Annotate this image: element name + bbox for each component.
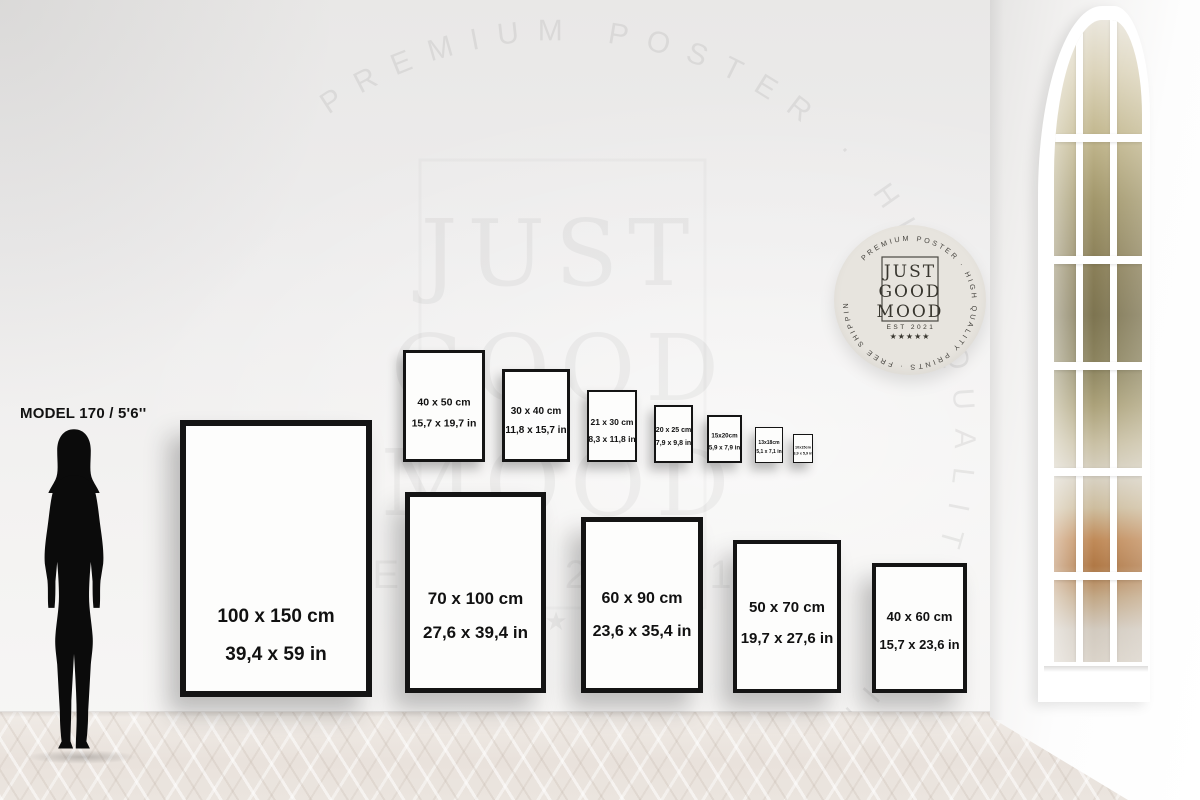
- window-muntin-vertical: [1110, 20, 1117, 662]
- frame-size-in: 3,9 x 5,9 in: [793, 451, 812, 455]
- frame-30x40: 30 x 40 cm 11,8 x 15,7 in: [502, 369, 570, 462]
- frame-size-in: 15,7 x 19,7 in: [412, 417, 477, 429]
- wall-corner-line: [990, 0, 1004, 720]
- frame-size-in: 8,3 x 11,8 in: [588, 434, 635, 444]
- window-muntin-horizontal: [1054, 134, 1142, 142]
- frame-size-cm: 40 x 60 cm: [876, 603, 963, 631]
- frame-size-in: 11,8 x 15,7 in: [505, 425, 566, 436]
- frame-size-in: 39,4 x 59 in: [186, 636, 366, 674]
- frame-13x18: 13x18cm 5,1 x 7,1 in: [755, 427, 783, 463]
- frame-15x20: 15x20cm 5,9 x 7,9 in: [707, 415, 742, 463]
- badge-word-mood: MOOD: [877, 302, 944, 322]
- window-muntin-horizontal: [1054, 468, 1142, 476]
- poster-size-guide-scene: PREMIUM POSTER · HIGH QUALITY PRINTS · F…: [0, 0, 1200, 800]
- frame-40x50: 40 x 50 cm 15,7 x 19,7 in: [403, 350, 485, 462]
- badge-word-just: JUST: [882, 262, 936, 282]
- frame-40x60: 40 x 60 cm 15,7 x 23,6 in: [872, 563, 967, 693]
- person-silhouette: [28, 424, 120, 760]
- frame-21x30: 21 x 30 cm 8,3 x 11,8 in: [587, 390, 637, 462]
- frame-size-in: 27,6 x 39,4 in: [410, 616, 541, 650]
- window-glass-trees-view: [1054, 20, 1142, 662]
- frame-size-in: 15,7 x 23,6 in: [876, 631, 963, 659]
- frame-70x100: 70 x 100 cm 27,6 x 39,4 in: [405, 492, 546, 693]
- right-wall: [990, 0, 1200, 800]
- window-sill: [1044, 666, 1148, 672]
- frame-size-in: 7,9 x 9,8 in: [656, 440, 691, 447]
- frame-size-cm: 60 x 90 cm: [586, 582, 698, 615]
- frame-size-cm: 70 x 100 cm: [410, 582, 541, 616]
- frame-100x150: 100 x 150 cm 39,4 x 59 in: [180, 420, 372, 697]
- brand-badge: PREMIUM POSTER · HIGH QUALITY PRINTS · F…: [834, 225, 986, 375]
- window-muntin-vertical: [1076, 20, 1083, 662]
- frame-20x25: 20 x 25 cm 7,9 x 9,8 in: [654, 405, 693, 463]
- window-muntin-horizontal: [1054, 362, 1142, 370]
- frame-size-in: 23,6 x 35,4 in: [586, 615, 698, 648]
- frame-size-cm: 13x18cm: [758, 440, 779, 446]
- frame-50x70: 50 x 70 cm 19,7 x 27,6 in: [733, 540, 841, 693]
- frame-size-cm: 100 x 150 cm: [186, 598, 366, 636]
- model-height-label: MODEL 170 / 5'6'': [20, 405, 146, 422]
- frame-size-cm: 15x20cm: [711, 432, 737, 439]
- frame-size-in: 5,9 x 7,9 in: [709, 444, 740, 451]
- arched-window: [1038, 6, 1150, 702]
- frame-10x15: 10x15cm 3,9 x 5,9 in: [793, 434, 813, 463]
- frame-size-in: 5,1 x 7,1 in: [756, 449, 781, 455]
- frame-60x90: 60 x 90 cm 23,6 x 35,4 in: [581, 517, 703, 693]
- window-muntin-horizontal: [1054, 256, 1142, 264]
- frame-size-cm: 21 x 30 cm: [590, 417, 633, 427]
- silhouette-body: [45, 475, 104, 748]
- badge-stars: ★★★★★: [890, 332, 931, 341]
- frame-size-cm: 40 x 50 cm: [417, 396, 470, 408]
- frame-size-in: 19,7 x 27,6 in: [737, 623, 837, 654]
- frame-size-cm: 20 x 25 cm: [656, 427, 691, 434]
- window-muntin-horizontal: [1054, 572, 1142, 580]
- frame-size-cm: 50 x 70 cm: [737, 592, 837, 623]
- badge-word-good: GOOD: [878, 282, 941, 302]
- frame-size-cm: 30 x 40 cm: [511, 406, 562, 417]
- badge-est-text: EST 2021: [887, 324, 936, 331]
- wall-corner-shade: [0, 0, 340, 420]
- frame-size-cm: 10x15cm: [795, 445, 811, 449]
